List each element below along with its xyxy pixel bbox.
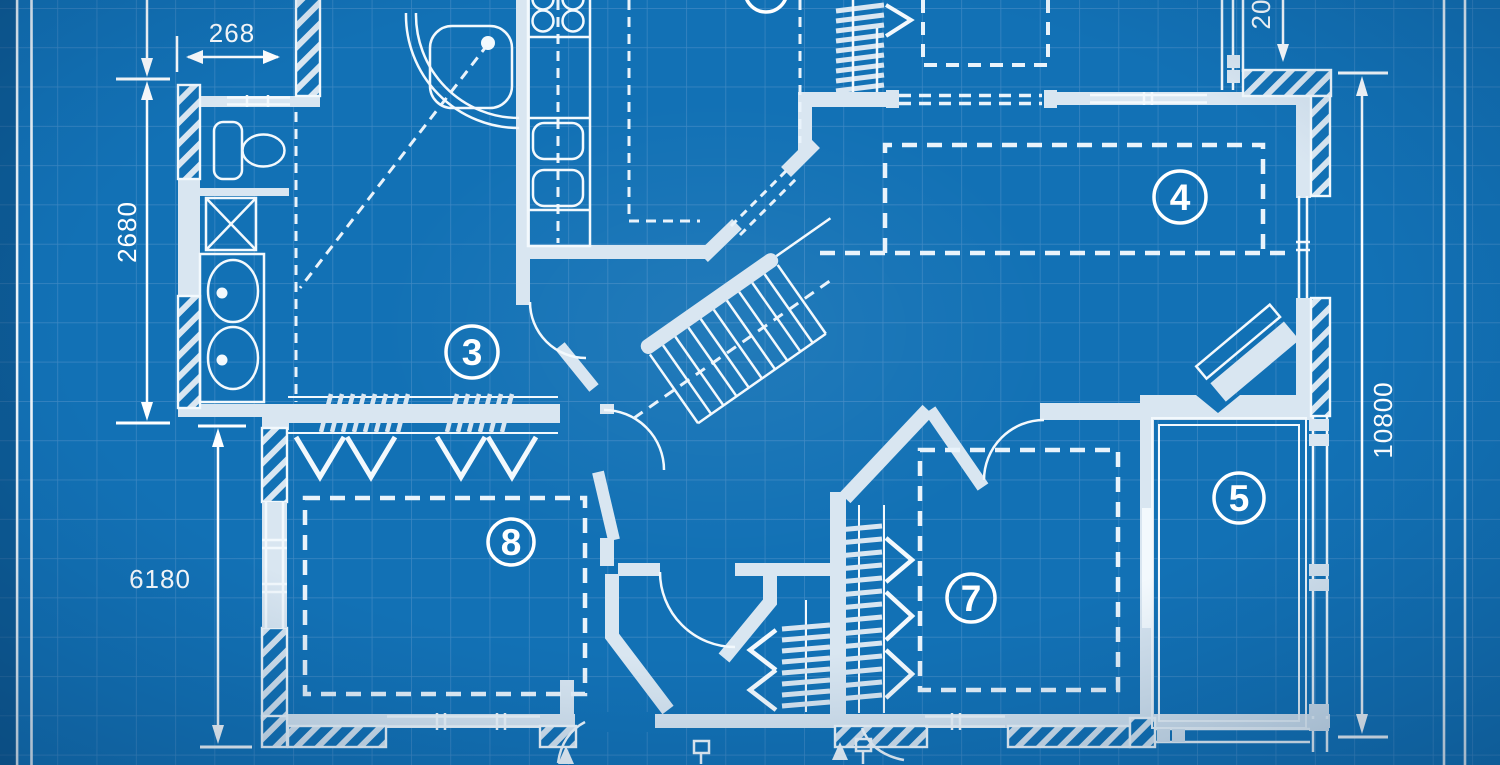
dimension-2680: 2680 [112,201,142,263]
dimension-6180: 6180 [129,564,191,594]
left-edge-shade [0,0,16,765]
svg-text:8: 8 [501,522,522,563]
blueprint-floorplan: 268 2680 6180 10800 20 3 4 5 7 8 [0,0,1500,765]
svg-text:7: 7 [961,578,982,619]
dimension-10800: 10800 [1368,381,1398,458]
room5-left-door-panel [1142,508,1152,628]
shower-head-icon [481,36,495,50]
dimension-20-clipped: 20 [1246,0,1276,29]
blueprint-canvas: 268 2680 6180 10800 20 3 4 5 7 8 [0,0,1500,765]
svg-text:4: 4 [1170,177,1191,218]
dimension-268: 268 [209,18,255,48]
bottom-door-opening [575,712,655,732]
paper-glow [380,100,1060,560]
window-room8-left [262,502,287,628]
svg-text:3: 3 [462,332,483,373]
svg-text:5: 5 [1229,478,1250,519]
